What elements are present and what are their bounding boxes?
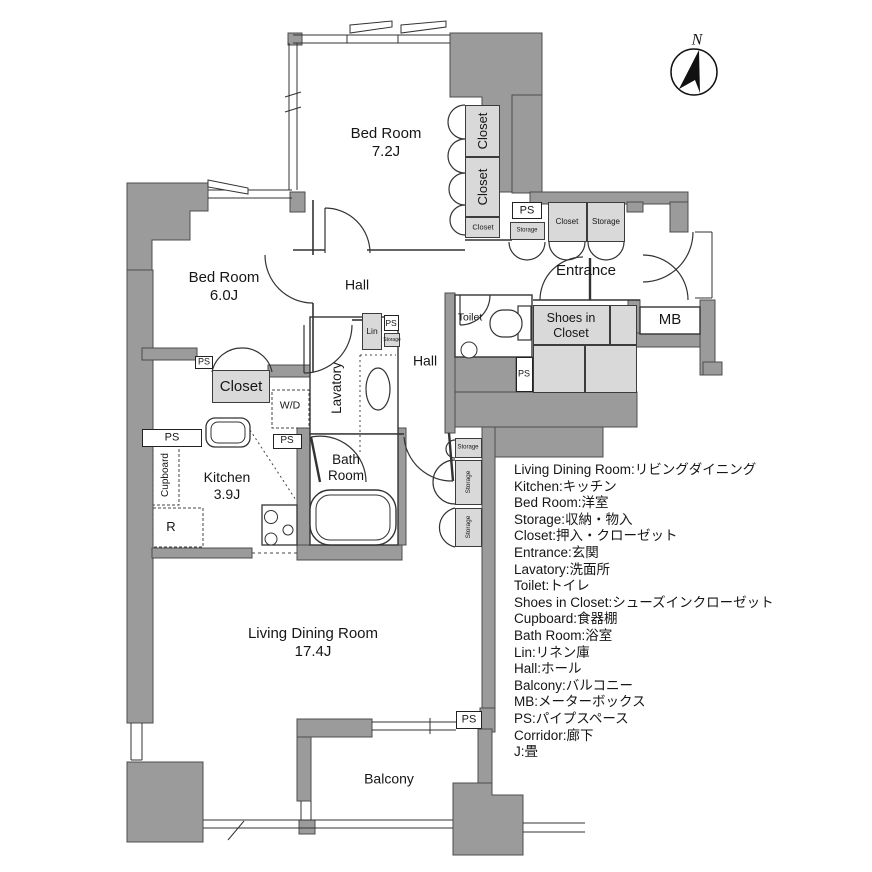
room-size: 3.9J [204,486,251,503]
refrigerator-label: R [166,519,175,535]
toilet-bowl [490,310,522,337]
kitchen-sink-inner [211,422,245,443]
bedroom2-door [265,255,313,303]
lavatory-sink [366,368,390,410]
ps-label: PS [385,318,396,328]
storage-label: Storage [457,444,478,451]
closet-label: Closet [220,378,263,396]
legend-item: Balcony:バルコニー [514,678,774,695]
closet-label: Closet [475,113,491,150]
legend-item: Toilet:トイレ [514,578,774,595]
shoes-in-closet-cell [610,305,637,345]
room-label-lavatory: Lavatory [329,362,345,414]
legend-item: Cupboard:食器棚 [514,611,774,628]
compass-needle-icon [679,50,700,93]
legend-item: Bed Room:洋室 [514,495,774,512]
bathtub-inner [316,495,390,540]
entry-door-arc [643,232,693,282]
room-label-kitchen: Kitchen 3.9J [204,469,251,503]
room-label-shoes-in-closet: Shoes in Closet [532,311,610,341]
stove-burner [283,525,293,535]
north-compass [671,49,717,95]
storage-label: Storage [383,337,401,343]
closet-label: Closet [556,217,579,227]
ps-label: PS [280,435,293,447]
bedroom1-door [325,208,370,253]
legend-item: Corridor:廊下 [514,728,774,745]
shoes-in-closet-cell [585,345,637,393]
entrance-closet-doors [509,242,624,260]
room-label-balcony: Balcony [364,771,414,788]
room-label-living: Living Dining Room 17.4J [248,625,378,661]
bedroom1-closet-doors [448,105,465,235]
room-name: Living Dining Room [248,625,378,643]
legend-item: Kitchen:キッチン [514,479,774,496]
room-label-hall2: Hall [413,353,437,370]
legend-item: Lavatory:洗面所 [514,562,774,579]
legend-item: Lin:リネン庫 [514,645,774,662]
closet-label: Closet [475,169,491,206]
legend-item: Entrance:玄関 [514,545,774,562]
room-name: Kitchen [204,469,251,486]
lin-label: Lin [366,326,377,336]
legend: Living Dining Room:リビングダイニング Kitchen:キッチ… [514,462,774,761]
bedroom2-closet-doors [212,348,272,372]
shoes-in-closet-cell [533,345,585,393]
legend-item: MB:メーターボックス [514,694,774,711]
legend-item: Living Dining Room:リビングダイニング [514,462,774,479]
washer-dryer-label: W/D [280,400,300,413]
legend-item: Storage:収納・物入 [514,512,774,529]
room-label-bedroom1: Bed Room 7.2J [351,125,422,161]
refrigerator-outline [153,508,203,547]
toilet-basin [461,342,477,358]
legend-item: J:畳 [514,744,774,761]
storage-label: Storage [465,516,473,539]
ps-label: PS [462,713,477,726]
ps-label: PS [165,431,180,444]
room-size: 7.2J [351,143,422,161]
room-label-mb: MB [659,311,682,329]
ps-label: PS [518,369,530,380]
hall-ldk-door [404,437,453,481]
legend-item: PS:パイプスペース [514,711,774,728]
room-label-toilet: Toilet [458,312,483,325]
storage-label: Storage [465,471,473,494]
cupboard-label: Cupboard [160,453,172,497]
floorplan-image: Bed Room 7.2J Bed Room 6.0J Kitchen 3.9J… [0,0,872,872]
legend-item: Bath Room:浴室 [514,628,774,645]
stove-burner [265,511,278,524]
room-size: 17.4J [248,643,378,661]
legend-item: Hall:ホール [514,661,774,678]
room-name: Bed Room [189,269,260,287]
room-name: Bed Room [351,125,422,143]
storage-label: Storage [516,227,537,234]
room-label-hall1: Hall [345,277,369,294]
room-label-bedroom2: Bed Room 6.0J [189,269,260,305]
room-label-bathroom: Bath Room [318,452,374,484]
room-size: 6.0J [189,287,260,305]
ps-label: PS [520,204,535,217]
stove-burner [265,533,277,545]
north-label: N [692,30,703,49]
room-label-entrance: Entrance [556,262,616,280]
legend-item: Closet:押入・クローゼット [514,528,774,545]
entry-door-arc2 [643,255,688,300]
storage-label: Storage [592,217,620,227]
closet-label: Closet [472,223,493,232]
legend-item: Shoes in Closet:シューズインクローゼット [514,595,774,612]
ps-label: PS [198,357,210,368]
